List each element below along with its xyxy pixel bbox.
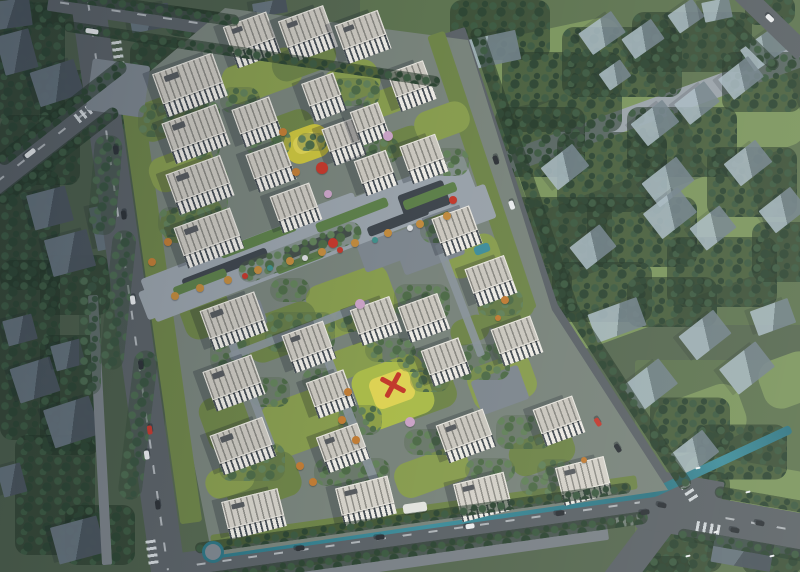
orange-accent <box>224 276 232 284</box>
canal-basin <box>202 541 224 563</box>
orangeDeep-accent <box>352 436 360 444</box>
orangeDeep-accent <box>279 128 287 136</box>
car <box>765 13 775 22</box>
orangeDeep-accent <box>296 462 304 470</box>
orangeDeep-accent <box>344 388 352 396</box>
orange-accent <box>443 212 451 220</box>
car <box>492 155 499 165</box>
aerial-masterplan-render: Bird's-eye architectural rendering of a … <box>0 0 800 572</box>
red-accent <box>316 162 328 174</box>
teal-accent <box>267 265 273 271</box>
flying-bird <box>695 467 700 470</box>
flying-bird <box>713 531 718 534</box>
orangeDeep-accent <box>581 457 587 463</box>
car <box>144 450 150 460</box>
car <box>508 200 515 210</box>
red-accent <box>337 247 343 253</box>
red-accent <box>449 196 457 204</box>
street-tree-row <box>714 485 800 514</box>
pink-accent <box>324 190 332 198</box>
car <box>465 523 475 529</box>
flying-bird <box>685 555 690 558</box>
pink-accent <box>355 299 365 309</box>
orange-accent <box>318 248 326 256</box>
orangeDeep-accent <box>309 478 317 486</box>
flying-bird <box>769 555 774 558</box>
car <box>155 500 161 510</box>
pink-accent <box>405 417 415 427</box>
white-accent <box>407 225 413 231</box>
orange-accent <box>171 292 179 300</box>
orange-accent <box>196 284 204 292</box>
car <box>594 417 603 427</box>
layer-details <box>0 0 800 572</box>
car <box>730 527 740 533</box>
street-tree-row <box>723 15 782 72</box>
white-accent <box>302 255 308 261</box>
car <box>640 509 650 515</box>
car <box>147 425 153 435</box>
orange-accent <box>286 257 294 265</box>
red-accent <box>328 238 338 248</box>
orangeDeep-accent <box>338 416 346 424</box>
street-tree-row <box>562 300 694 492</box>
orange-accent <box>384 229 392 237</box>
pink-accent <box>383 131 393 141</box>
car <box>657 502 667 508</box>
street-tree-row <box>79 275 101 395</box>
teal-accent <box>372 237 378 243</box>
orangeDeep-accent <box>148 258 156 266</box>
car <box>295 545 305 551</box>
car <box>121 210 127 220</box>
red-accent <box>242 273 248 279</box>
orangeDeep-accent <box>164 238 172 246</box>
street-tree-row <box>469 26 580 314</box>
orange-accent <box>254 266 262 274</box>
car <box>375 534 385 540</box>
orangeDeep-accent <box>495 315 501 321</box>
street-tree-row <box>117 349 159 501</box>
orangeDeep-accent <box>501 296 509 304</box>
orange-accent <box>351 239 359 247</box>
car <box>755 520 765 526</box>
car <box>555 510 565 516</box>
car <box>130 295 136 305</box>
car <box>614 443 623 453</box>
orange-accent <box>416 220 424 228</box>
street-tree-row <box>63 20 440 87</box>
orangeDeep-accent <box>292 168 300 176</box>
